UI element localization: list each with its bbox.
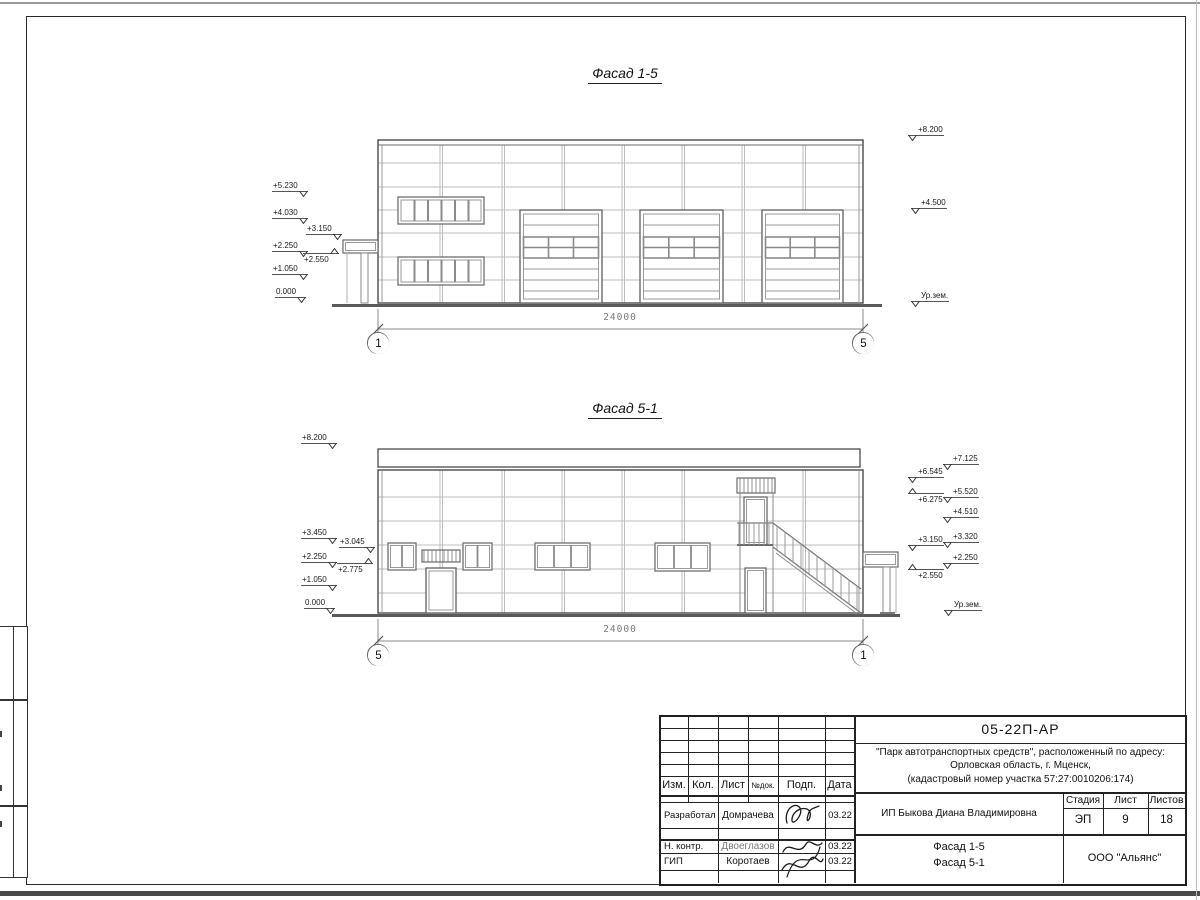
elevation-marker: +7.125 <box>943 454 979 465</box>
elevation-marker: +2.250 <box>301 552 337 563</box>
cut-text-fragment <box>0 785 2 791</box>
elevation-marker: +4.030 <box>272 208 308 219</box>
facade-1-5-drawing <box>330 128 902 360</box>
tb-name: Домрачева <box>719 803 777 828</box>
tb-role: Разработал <box>661 803 720 828</box>
tb-project-line1: "Парк автотранспортных средств", располо… <box>858 746 1183 760</box>
tb-line <box>660 795 855 797</box>
paper-edge-bottom <box>0 891 1200 896</box>
entrance-door <box>422 550 460 613</box>
tb-date: 03.22 <box>826 854 854 870</box>
window-2pane <box>388 543 416 570</box>
cut-text-fragment <box>0 731 2 737</box>
tb-role: Н. контр. <box>661 840 720 853</box>
garage-door-1 <box>520 210 602 303</box>
side-canopy <box>863 552 898 613</box>
elevation-marker: +3.150 <box>306 224 342 235</box>
tb-line <box>660 764 855 765</box>
margin-stamp-box <box>0 806 28 878</box>
tb-col-izm: Изм. <box>660 777 688 795</box>
facade-5-1-title: Фасад 5-1 <box>540 400 710 416</box>
tb-name: Коротаев <box>719 854 777 870</box>
entrance-canopy <box>343 240 378 303</box>
facade-1-5-title-text: Фасад 1-5 <box>588 65 662 84</box>
tb-line <box>660 870 855 871</box>
elevation-marker: +8.200 <box>908 125 944 136</box>
window-3pane <box>655 543 710 571</box>
elevation-marker: +8.200 <box>301 433 337 444</box>
tb-project-line2: Орловская область, г. Мценск, <box>858 759 1183 773</box>
elevation-marker: +5.520 <box>943 487 979 498</box>
ground-level-marker: Ур.зем. <box>911 291 949 302</box>
axis-number-5: 5 <box>368 645 389 666</box>
tb-line <box>660 828 855 829</box>
elevation-marker: +2.550 <box>303 253 339 264</box>
tb-col-podp: Подп. <box>778 777 825 795</box>
tb-role: ГИП <box>661 854 720 870</box>
tb-project-line3: (кадастровый номер участка 57:27:0010206… <box>858 772 1183 788</box>
tb-col-data: Дата <box>825 777 854 795</box>
cut-text-fragment <box>0 821 2 827</box>
elevation-marker: +3.450 <box>301 528 337 539</box>
window-3pane <box>535 543 590 570</box>
tb-line <box>660 740 855 741</box>
signature <box>781 799 823 831</box>
dimension-24000: 24000 <box>585 312 655 323</box>
elevation-marker: +3.045 <box>339 537 375 548</box>
tb-doc-code: 05-22П-АР <box>856 716 1185 742</box>
tb-col-list: Лист <box>718 777 748 795</box>
signature <box>779 836 825 881</box>
elevation-marker: +1.050 <box>301 575 337 586</box>
tb-line <box>660 728 855 729</box>
ground-level-marker: Ур.зем. <box>944 600 982 611</box>
drawing-sheet: Фасад 1-5 <box>0 0 1200 900</box>
tb-drawing-title-line2: Фасад 5-1 <box>856 856 1062 872</box>
tb-col-kol: Кол. <box>689 777 717 795</box>
tb-stage-value: ЭП <box>1063 808 1103 834</box>
tb-col-ndok: №док. <box>748 777 778 795</box>
elevation-marker: +5.230 <box>272 181 308 192</box>
margin-stamp-box <box>0 626 28 700</box>
tb-sheets-value: 18 <box>1148 808 1185 834</box>
garage-door-3 <box>762 210 843 303</box>
tb-client: ИП Быкова Диана Владимировна <box>856 794 1062 834</box>
parapet-band <box>378 449 860 467</box>
tb-line <box>855 743 1185 744</box>
elevation-marker: +4.510 <box>943 507 979 518</box>
elevation-marker: +4.500 <box>911 198 947 209</box>
elevation-marker: 0.000 <box>275 287 306 298</box>
elevation-marker: +1.050 <box>272 264 308 275</box>
tb-drawing-title-line1: Фасад 1-5 <box>856 840 1062 856</box>
tb-sheet-value: 9 <box>1103 808 1148 834</box>
tb-name: Двоеглазов <box>719 840 777 853</box>
tb-sheets-label: Листов <box>1148 793 1185 808</box>
axis-number-1: 1 <box>853 645 874 666</box>
tb-sheet-label: Лист <box>1103 793 1148 808</box>
axis-number-1: 1 <box>368 333 389 354</box>
ribbon-window-lower <box>398 257 484 285</box>
elevation-marker: +6.545 <box>908 467 944 478</box>
elevation-marker: +2.250 <box>272 241 308 252</box>
elevation-marker: +2.250 <box>943 553 979 564</box>
paper-edge-right <box>1196 0 1197 900</box>
axis-number-5: 5 <box>853 333 874 354</box>
facade-5-1-title-text: Фасад 5-1 <box>588 400 662 419</box>
ribbon-window-upper <box>398 197 484 224</box>
tb-stage-label: Стадия <box>1063 793 1103 808</box>
window-2pane <box>463 543 492 570</box>
tb-date: 03.22 <box>826 840 854 853</box>
elevation-marker: +2.550 <box>908 569 944 580</box>
garage-door-2 <box>640 210 723 303</box>
dimension-24000: 24000 <box>585 624 655 635</box>
elevation-marker: +3.320 <box>943 532 979 543</box>
elevation-marker: 0.000 <box>304 598 335 609</box>
facade-1-5-title: Фасад 1-5 <box>540 65 710 81</box>
tb-date: 03.22 <box>826 803 854 828</box>
elevation-marker: +6.275 <box>908 493 944 504</box>
tb-company: ООО "Альянс" <box>1064 836 1185 882</box>
facade-5-1-drawing <box>330 428 902 678</box>
elevation-marker: +3.150 <box>908 535 944 546</box>
margin-stamp-box <box>0 700 28 806</box>
tb-line <box>660 752 855 753</box>
paper-edge-top <box>0 2 1200 4</box>
elevation-marker: +2.775 <box>337 563 373 574</box>
